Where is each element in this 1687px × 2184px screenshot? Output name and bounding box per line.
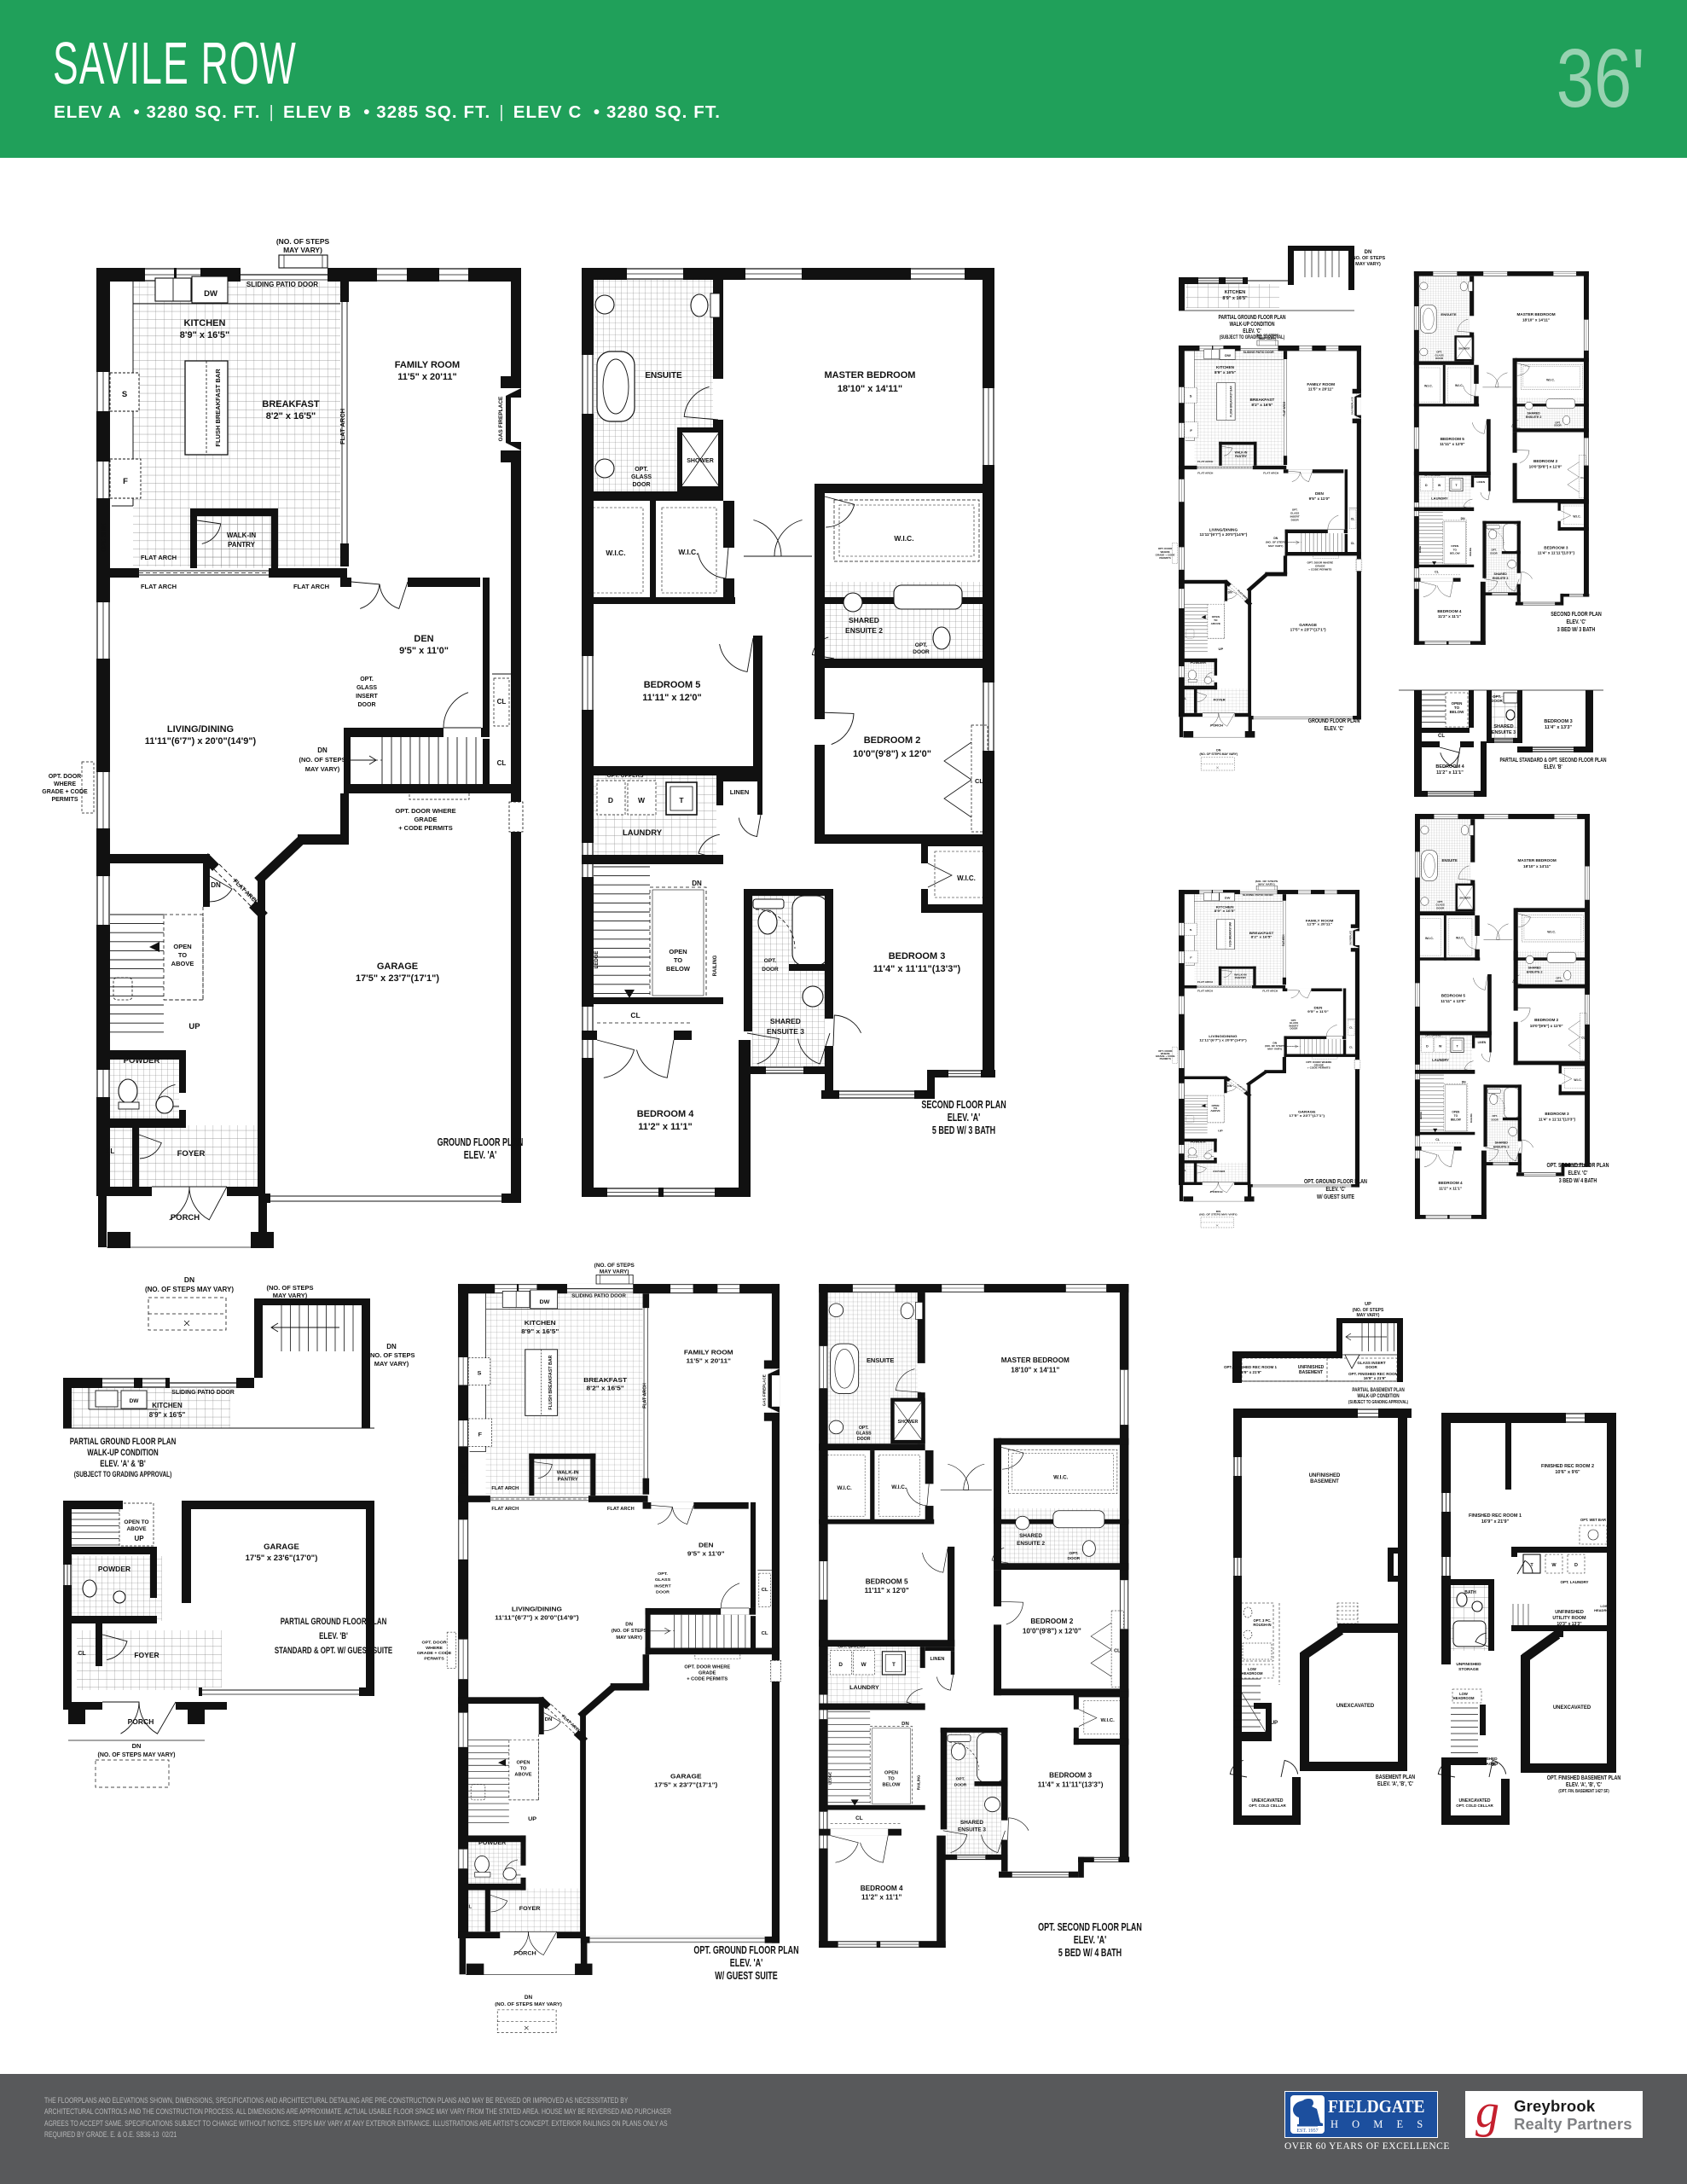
svg-text:HEADROOM: HEADROOM (1594, 1608, 1615, 1612)
svg-text:UNEXCAVATED: UNEXCAVATED (1553, 1705, 1591, 1711)
svg-text:OPT. FINISHED BASEMENT PLAN: OPT. FINISHED BASEMENT PLAN (1547, 1774, 1621, 1781)
svg-text:KITCHEN: KITCHEN (184, 318, 226, 328)
svg-text:17'5" x 23'7"(17'1"): 17'5" x 23'7"(17'1") (356, 973, 439, 984)
svg-text:EST. 1957: EST. 1957 (1296, 2129, 1318, 2134)
svg-text:ELEV. 'B': ELEV. 'B' (319, 1631, 348, 1642)
svg-text:MAY VARY): MAY VARY) (305, 765, 340, 773)
svg-text:ELEV. 'A': ELEV. 'A' (1074, 1935, 1107, 1947)
svg-text:D: D (608, 796, 613, 804)
svg-text:10'0"(9'8") x 12'0": 10'0"(9'8") x 12'0" (853, 749, 931, 759)
svg-text:DN: DN (317, 746, 328, 754)
svg-text:POWDER: POWDER (124, 1056, 160, 1066)
svg-text:W.I.C.: W.I.C. (678, 548, 698, 556)
svg-text:SLIDING PATIO DOOR: SLIDING PATIO DOOR (171, 1390, 235, 1396)
svg-text:PARTIAL BASEMENT PLAN: PARTIAL BASEMENT PLAN (1352, 1387, 1404, 1393)
svg-text:TO: TO (178, 951, 187, 959)
svg-text:ELEV. 'B': ELEV. 'B' (1544, 764, 1562, 770)
svg-text:WALK-UP CONDITION: WALK-UP CONDITION (1357, 1393, 1399, 1399)
svg-text:MASTER BEDROOM: MASTER BEDROOM (825, 370, 916, 380)
svg-text:INSERT: INSERT (356, 694, 378, 700)
svg-text:9'5" x 11'0": 9'5" x 11'0" (399, 646, 449, 656)
svg-text:DOOR: DOOR (358, 702, 376, 708)
svg-text:BELOW: BELOW (1450, 710, 1465, 714)
svg-text:GARAGE: GARAGE (264, 1542, 299, 1552)
svg-text:11'11"(6'7") x 20'0"(14'9"): 11'11"(6'7") x 20'0"(14'9") (145, 736, 257, 746)
svg-text:10'6" x 9'6": 10'6" x 9'6" (1555, 1470, 1580, 1475)
svg-text:GROUND FLOOR PLAN: GROUND FLOOR PLAN (438, 1137, 524, 1149)
svg-text:RAILING: RAILING (713, 955, 718, 976)
svg-text:FAMILY ROOM: FAMILY ROOM (395, 360, 460, 370)
svg-text:LAUNDRY: LAUNDRY (623, 828, 663, 838)
svg-text:GAS FIREPLACE: GAS FIREPLACE (498, 396, 504, 441)
svg-text:8'9" x 16'5": 8'9" x 16'5" (180, 330, 229, 340)
svg-text:ELEV. 'A', 'B', 'C': ELEV. 'A', 'B', 'C' (1566, 1781, 1602, 1788)
svg-text:CL: CL (497, 759, 507, 767)
svg-text:PARTIAL GROUND FLOOR PLAN: PARTIAL GROUND FLOOR PLAN (1218, 314, 1285, 321)
svg-text:UP: UP (1365, 1302, 1371, 1307)
svg-text:GRADE + CODE: GRADE + CODE (42, 789, 88, 795)
svg-text:GLASS: GLASS (631, 474, 652, 480)
svg-text:ABOVE: ABOVE (171, 960, 194, 967)
svg-text:UNFINISHED: UNFINISHED (1555, 1610, 1584, 1615)
svg-text:(NO. OF STEPS MAY VARY): (NO. OF STEPS MAY VARY) (145, 1286, 234, 1293)
svg-text:(SUBJECT TO GRADING APPROVAL): (SUBJECT TO GRADING APPROVAL) (1220, 334, 1285, 340)
svg-text:16'9" x 21'9": 16'9" x 21'9" (1481, 1519, 1510, 1525)
svg-text:DOOR: DOOR (1491, 699, 1503, 703)
svg-text:MAY VARY): MAY VARY) (273, 1292, 308, 1299)
svg-text:PANTRY: PANTRY (228, 541, 256, 549)
svg-text:5 BED W/ 3 BATH: 5 BED W/ 3 BATH (932, 1125, 995, 1137)
svg-text:PARTIAL GROUND FLOOR PLAN: PARTIAL GROUND FLOOR PLAN (70, 1437, 177, 1448)
svg-text:(NO. OF STEPS MAY VARY): (NO. OF STEPS MAY VARY) (97, 1752, 175, 1758)
svg-text:OPT.: OPT. (635, 467, 648, 473)
svg-text:ABOVE: ABOVE (126, 1526, 147, 1532)
svg-text:W.I.C.: W.I.C. (894, 534, 913, 543)
svg-text:LIVING/DINING: LIVING/DINING (167, 724, 234, 735)
svg-text:BEDROOM 4: BEDROOM 4 (1435, 764, 1464, 770)
svg-text:3 BED W/ 3 BATH: 3 BED W/ 3 BATH (1557, 626, 1596, 633)
svg-text:5 BED W/ 4 BATH: 5 BED W/ 4 BATH (1058, 1948, 1122, 1960)
svg-text:OPEN TO: OPEN TO (124, 1519, 148, 1525)
svg-text:BEDROOM 2: BEDROOM 2 (864, 735, 921, 746)
svg-text:DOOR: DOOR (1365, 1365, 1377, 1369)
svg-text:POWDER: POWDER (98, 1565, 130, 1573)
svg-text:W.I.C.: W.I.C. (957, 874, 976, 882)
svg-text:8'9" x 16'5": 8'9" x 16'5" (1222, 296, 1248, 301)
svg-text:ENSUITE 3: ENSUITE 3 (767, 1027, 804, 1036)
svg-text:(SUBJECT TO GRADING APPROVAL): (SUBJECT TO GRADING APPROVAL) (74, 1470, 172, 1478)
svg-text:OPT. SECOND FLOOR PLAN: OPT. SECOND FLOOR PLAN (1547, 1162, 1609, 1169)
svg-text:FLAT ARCH: FLAT ARCH (232, 879, 260, 907)
svg-text:OPT.: OPT. (764, 958, 777, 964)
svg-text:BASEMENT: BASEMENT (1299, 1370, 1323, 1375)
svg-text:SECOND FLOOR PLAN: SECOND FLOOR PLAN (1551, 611, 1602, 618)
svg-text:W/ GUEST SUITE: W/ GUEST SUITE (715, 1971, 777, 1983)
svg-text:11'2" x 11'1": 11'2" x 11'1" (1436, 770, 1464, 775)
svg-text:OPT. COLD CELLAR: OPT. COLD CELLAR (1249, 1804, 1286, 1808)
svg-text:KITCHEN: KITCHEN (1225, 290, 1245, 295)
svg-text:STORAGE: STORAGE (1458, 1667, 1479, 1672)
svg-text:UNFINISHED: UNFINISHED (1456, 1662, 1481, 1667)
svg-text:PORCH: PORCH (171, 1213, 200, 1223)
svg-text:OPEN: OPEN (669, 948, 687, 955)
svg-text:DN: DN (1365, 250, 1372, 255)
svg-text:OPT. DOOR WHERE: OPT. DOOR WHERE (395, 807, 455, 815)
svg-text:HEADROOM: HEADROOM (1453, 1696, 1475, 1700)
svg-text:ELEV. 'A' & 'B': ELEV. 'A' & 'B' (100, 1459, 145, 1470)
svg-text:OPT. GROUND FLOOR PLAN: OPT. GROUND FLOOR PLAN (1304, 1178, 1367, 1185)
svg-text:BREAKFAST: BREAKFAST (262, 399, 320, 409)
svg-text:MAY VARY): MAY VARY) (374, 1360, 409, 1368)
svg-text:3 BED W/ 4 BATH: 3 BED W/ 4 BATH (1559, 1177, 1597, 1184)
svg-text:SHARED: SHARED (849, 616, 879, 624)
svg-text:ELEV. 'C': ELEV. 'C' (1324, 725, 1343, 732)
svg-text:ELEV. 'C': ELEV. 'C' (1325, 1186, 1345, 1193)
svg-text:LINEN: LINEN (730, 788, 750, 796)
svg-text:FOYER: FOYER (177, 1149, 206, 1159)
svg-text:OPT. SECOND FLOOR PLAN: OPT. SECOND FLOOR PLAN (1038, 1922, 1142, 1934)
svg-text:S: S (122, 390, 127, 399)
svg-text:UNFINISHED: UNFINISHED (1309, 1473, 1341, 1478)
svg-text:8'9" x 16'5": 8'9" x 16'5" (149, 1411, 186, 1419)
svg-text:DW: DW (204, 289, 217, 299)
svg-text:BATH: BATH (1464, 1590, 1476, 1595)
svg-text:ELEV. 'C': ELEV. 'C' (1243, 328, 1261, 334)
svg-text:BEDROOM 3: BEDROOM 3 (889, 951, 946, 961)
svg-text:SHARED: SHARED (770, 1017, 801, 1025)
svg-text:PARTIAL STANDARD & OPT. SECOND: PARTIAL STANDARD & OPT. SECOND FLOOR PLA… (1499, 757, 1606, 764)
svg-text:W.I.C.: W.I.C. (606, 549, 625, 557)
svg-text:11'5" x 20'11": 11'5" x 20'11" (397, 372, 457, 382)
svg-text:CL: CL (78, 1651, 86, 1657)
svg-text:16'9" x 21'9": 16'9" x 21'9" (1239, 1370, 1261, 1374)
svg-text:HEADROOM: HEADROOM (1242, 1671, 1263, 1676)
svg-text:SECOND FLOOR PLAN: SECOND FLOOR PLAN (921, 1100, 1006, 1112)
svg-text:SHARED: SHARED (1493, 724, 1513, 729)
svg-text:BASEMENT: BASEMENT (1310, 1479, 1339, 1484)
svg-text:CL: CL (1438, 734, 1445, 739)
svg-text:BELOW: BELOW (666, 965, 691, 973)
svg-text:ELEV. 'A': ELEV. 'A' (464, 1150, 497, 1162)
svg-text:OPT. LAUNDRY: OPT. LAUNDRY (1560, 1580, 1588, 1584)
svg-text:OPT.: OPT. (360, 677, 374, 682)
svg-text:DN: DN (184, 1275, 194, 1284)
svg-text:11'4" x 11'11"(13'3"): 11'4" x 11'11"(13'3") (873, 964, 961, 974)
svg-text:DOOR: DOOR (762, 967, 779, 973)
svg-text:SHOWER: SHOWER (687, 458, 714, 464)
svg-text:FINISHED REC ROOM 1: FINISHED REC ROOM 1 (1469, 1513, 1522, 1519)
svg-text:GROUND FLOOR PLAN: GROUND FLOOR PLAN (1308, 717, 1360, 724)
svg-text:DN: DN (386, 1343, 397, 1350)
svg-text:BASEMENT PLAN: BASEMENT PLAN (1376, 1774, 1416, 1780)
svg-text:GRADE: GRADE (414, 816, 437, 823)
svg-text:ENSUITE: ENSUITE (645, 371, 682, 380)
svg-text:WALK-UP CONDITION: WALK-UP CONDITION (87, 1448, 158, 1459)
svg-text:CL: CL (630, 1011, 640, 1019)
svg-text:FOYER: FOYER (134, 1651, 159, 1659)
svg-text:OPT. SINK: OPT. SINK (101, 523, 107, 552)
svg-text:ROUGH-IN: ROUGH-IN (1253, 1623, 1271, 1627)
svg-text:16'9" x 21'9": 16'9" x 21'9" (1364, 1376, 1386, 1380)
svg-text:D: D (1574, 1563, 1578, 1568)
svg-text:(NO. OF STEPS: (NO. OF STEPS (1351, 256, 1386, 261)
svg-text:8'2" x 16'5": 8'2" x 16'5" (266, 411, 316, 421)
svg-text:ELEV. 'A': ELEV. 'A' (948, 1112, 981, 1124)
svg-text:DN: DN (692, 880, 702, 887)
svg-text:(OPT. FIN. BASEMENT 1427 SF): (OPT. FIN. BASEMENT 1427 SF) (1558, 1788, 1609, 1794)
svg-text:(NO. OF STEPS: (NO. OF STEPS (368, 1351, 415, 1359)
svg-text:UP: UP (134, 1535, 144, 1542)
svg-text:DOOR: DOOR (633, 482, 651, 488)
svg-text:GLASS: GLASS (357, 685, 377, 691)
svg-text:F: F (123, 477, 128, 486)
svg-text:SLIDING PATIO DOOR: SLIDING PATIO DOOR (246, 281, 318, 288)
svg-text:OPT. FINISHED REC ROOM 1: OPT. FINISHED REC ROOM 1 (1224, 1365, 1278, 1369)
svg-text:18'10" x 14'11": 18'10" x 14'11" (838, 384, 902, 394)
svg-text:STANDARD & OPT. W/ GUEST SUITE: STANDARD & OPT. W/ GUEST SUITE (275, 1646, 393, 1657)
svg-text:OPEN: OPEN (173, 943, 191, 950)
svg-text:MAY VARY): MAY VARY) (1355, 262, 1381, 267)
svg-text:DN: DN (132, 1742, 142, 1750)
svg-text:FLAT ARCH: FLAT ARCH (293, 583, 329, 590)
svg-text:PORCH: PORCH (128, 1717, 154, 1726)
svg-text:11'11" x 12'0": 11'11" x 12'0" (642, 693, 702, 703)
svg-text:BEDROOM 4: BEDROOM 4 (637, 1109, 695, 1119)
svg-text:UP: UP (1271, 1721, 1278, 1726)
svg-text:OPT. UPPERS: OPT. UPPERS (607, 773, 645, 779)
svg-text:UP: UP (188, 1022, 200, 1031)
svg-text:DW: DW (130, 1398, 140, 1404)
svg-text:CL: CL (106, 1147, 115, 1155)
svg-text:FLAT ARCH: FLAT ARCH (141, 554, 177, 561)
svg-text:+ CODE PERMITS: + CODE PERMITS (398, 824, 453, 832)
svg-text:WALK-UP CONDITION: WALK-UP CONDITION (1230, 321, 1275, 328)
svg-text:TO: TO (674, 956, 682, 964)
svg-text:WHERE: WHERE (54, 781, 76, 787)
svg-text:MAY VARY): MAY VARY) (283, 246, 322, 254)
svg-text:OPT.: OPT. (915, 642, 928, 648)
svg-text:ENSUITE 2: ENSUITE 2 (845, 626, 883, 635)
svg-text:W/ GUEST SUITE: W/ GUEST SUITE (1317, 1194, 1355, 1200)
svg-text:ENSUITE 3: ENSUITE 3 (1492, 730, 1516, 735)
svg-text:FLUSH BREAKFAST BAR: FLUSH BREAKFAST BAR (214, 369, 222, 447)
svg-text:DN: DN (211, 881, 221, 889)
svg-text:ELEV. 'C': ELEV. 'C' (1568, 1170, 1587, 1176)
svg-text:W: W (638, 796, 646, 804)
svg-text:OPT. DOOR: OPT. DOOR (49, 774, 82, 780)
svg-text:BEDROOM 5: BEDROOM 5 (644, 680, 701, 690)
svg-text:W: W (1551, 1563, 1557, 1568)
svg-text:CL: CL (497, 698, 507, 706)
svg-text:FINISHED REC ROOM 2: FINISHED REC ROOM 2 (1541, 1464, 1594, 1469)
svg-text:OPT. COLD CELLAR: OPT. COLD CELLAR (1456, 1804, 1493, 1808)
svg-text:ELEV. 'A', 'B', 'C': ELEV. 'A', 'B', 'C' (1377, 1780, 1413, 1787)
svg-text:ELEV. 'C': ELEV. 'C' (1566, 619, 1586, 625)
svg-text:DOOR: DOOR (913, 649, 930, 655)
svg-text:FLAT ARCH: FLAT ARCH (141, 583, 177, 590)
svg-text:PARTIAL GROUND FLOOR PLAN: PARTIAL GROUND FLOOR PLAN (281, 1617, 387, 1628)
svg-text:UTILITY ROOM: UTILITY ROOM (1552, 1616, 1586, 1621)
svg-text:DEN: DEN (414, 634, 433, 644)
svg-text:UNEXCAVATED: UNEXCAVATED (1336, 1704, 1375, 1709)
svg-text:(SUBJECT TO GRADING APPROVAL): (SUBJECT TO GRADING APPROVAL) (1348, 1399, 1408, 1405)
svg-text:(NO. OF STEPS: (NO. OF STEPS (266, 1284, 313, 1292)
svg-text:WALK-IN: WALK-IN (227, 531, 256, 539)
svg-text:GARAGE: GARAGE (377, 961, 418, 972)
svg-text:17'5" x 23'6"(17'0"): 17'5" x 23'6"(17'0") (246, 1554, 318, 1563)
svg-text:CL: CL (975, 777, 983, 785)
svg-text:(NO. OF STEPS: (NO. OF STEPS (276, 237, 330, 246)
svg-text:T: T (679, 796, 684, 804)
svg-text:MAY VARY): MAY VARY) (1357, 1313, 1380, 1318)
svg-text:OPT. WET BAR: OPT. WET BAR (1580, 1518, 1606, 1522)
svg-text:KITCHEN: KITCHEN (152, 1402, 183, 1409)
svg-text:(NO. OF STEPS: (NO. OF STEPS (299, 756, 345, 764)
svg-text:ELEV. 'A': ELEV. 'A' (730, 1958, 763, 1970)
svg-text:FLAT ARCH: FLAT ARCH (339, 409, 346, 444)
svg-text:OPT. GROUND FLOOR PLAN: OPT. GROUND FLOOR PLAN (693, 1945, 798, 1957)
svg-text:11'2" x 11'1": 11'2" x 11'1" (638, 1122, 692, 1132)
svg-text:11'4" x 13'3": 11'4" x 13'3" (1545, 725, 1572, 730)
svg-text:LEDGE: LEDGE (594, 951, 600, 969)
svg-text:PERMITS: PERMITS (51, 797, 78, 803)
svg-text:BEDROOM 3: BEDROOM 3 (1544, 719, 1572, 724)
